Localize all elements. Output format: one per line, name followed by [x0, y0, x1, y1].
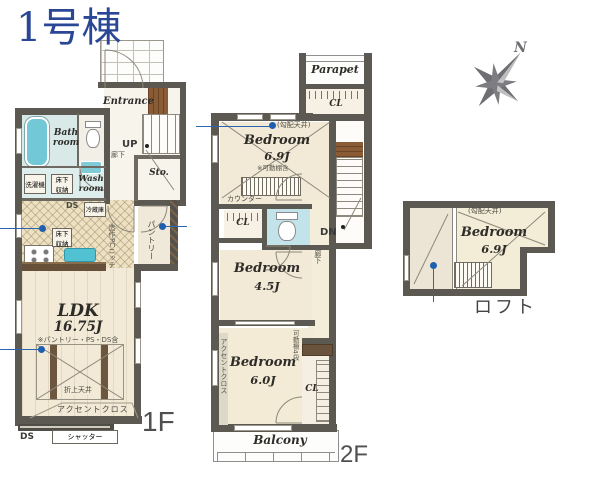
toilet-1f-tank [85, 121, 101, 128]
balcony-label: Balcony [248, 434, 312, 447]
wall [403, 289, 527, 296]
underfloor-storage-box: 床下 収納 [52, 228, 72, 247]
marker-dot-coffered[interactable] [38, 346, 45, 353]
ds-duct-line [20, 426, 110, 428]
accent-cloth-1f-label: アクセントクロス [57, 406, 129, 415]
marker-line [196, 126, 272, 127]
bookshelf [241, 177, 301, 196]
ceiling-beam-left [50, 345, 57, 399]
bedroom69-size: 6.9J [240, 150, 314, 163]
closet-bottom-label: CL [303, 384, 321, 394]
closet-top-label: CL [326, 99, 346, 109]
pantry-label: パントリー [146, 220, 155, 268]
window [16, 214, 22, 238]
bedroom45-name: Bedroom [230, 262, 304, 277]
marker-line [0, 349, 41, 350]
partition [134, 155, 138, 201]
wall [15, 108, 110, 115]
storage-room-floor [138, 159, 178, 201]
bedroom60-size: 6.0J [226, 374, 300, 387]
marker-line [433, 266, 434, 302]
floor2-label: 2F [340, 442, 368, 469]
bedroom69-note: ※可動棚含 [257, 165, 288, 172]
wall [262, 245, 336, 250]
window [212, 262, 218, 296]
wall [301, 84, 371, 89]
bedroom69-name: Bedroom [240, 134, 314, 149]
entrance-label: Entrance [103, 96, 149, 107]
ds-bottom-label: DS [20, 432, 34, 442]
stairs-1f [142, 114, 180, 154]
hanger-rod [309, 91, 361, 99]
loft-bedroom-size: 6.9J [460, 243, 528, 256]
wall [134, 200, 186, 206]
hallway-2f-label: 廊下 [313, 250, 321, 280]
window [235, 321, 295, 325]
dn-dot [341, 225, 345, 229]
coffered-ceiling-label: 折上天井 [62, 387, 94, 395]
wall [403, 201, 410, 296]
page-title: 1号棟 [16, 8, 121, 48]
closet-mid-label: CL [233, 218, 253, 228]
wall [299, 114, 371, 121]
marker-line [0, 228, 42, 229]
kitchen-counter [22, 262, 106, 271]
window [212, 350, 218, 386]
accent-cloth-2f-label: アクセントクロス [219, 338, 227, 422]
wall [548, 201, 555, 253]
sloped-ceiling-2f-label: (勾配天井) [277, 122, 310, 130]
wall [219, 204, 265, 209]
window [16, 128, 22, 154]
ceiling-beam-right [101, 345, 108, 399]
window [270, 114, 296, 120]
refrigerator-box: 冷蔵庫 [84, 202, 106, 217]
loft-side-floor [410, 208, 454, 289]
bedroom45-size: 4.5J [230, 280, 304, 293]
stair-landing-2f [336, 142, 363, 157]
counter-label: カウンター [227, 196, 262, 204]
washing-machine-box: 洗濯機 [24, 174, 46, 194]
marker-dot-bedroom69[interactable] [269, 122, 276, 129]
up-dot [145, 144, 149, 148]
wall [364, 53, 372, 248]
toilet-2f-tank [276, 212, 298, 220]
ds-top-label: DS [66, 202, 78, 211]
compass-rose: N [452, 34, 548, 128]
wall [219, 238, 267, 243]
window [135, 282, 141, 308]
wash-room-label: Wash room [74, 175, 108, 194]
ldk-size: 16.75J [25, 320, 131, 335]
window [16, 300, 22, 334]
partition [22, 198, 106, 201]
toilet-1f-bowl [86, 129, 100, 148]
storage-label: Sto. [142, 168, 176, 178]
wall [98, 82, 186, 88]
wall [180, 82, 186, 206]
kitchen-sink [64, 248, 96, 262]
parapet-label: Parapet [307, 64, 363, 76]
wall [134, 264, 178, 271]
title-number: 1号棟 [16, 8, 121, 48]
marker-dot-pantry[interactable] [159, 223, 166, 230]
floor1-label: 1F [142, 406, 175, 437]
window [135, 338, 141, 364]
dn-label: DN [320, 227, 337, 238]
marker-dot-kitchen[interactable] [39, 225, 46, 232]
wall [333, 243, 372, 249]
up-label: UP [122, 139, 137, 150]
compass-north-label: N [513, 40, 528, 56]
loft-label: ロフト [474, 297, 537, 317]
pc-niche-label: 造作PCニッチ [107, 224, 115, 290]
wall [262, 204, 267, 250]
underfloor-storage-box: 床下 収納 [51, 174, 73, 194]
floorplan-canvas: 1号棟 N N [0, 0, 600, 490]
loft-ladder [454, 262, 492, 288]
window [237, 114, 263, 120]
bedroom60-name: Bedroom [226, 356, 300, 371]
wall [22, 416, 142, 424]
movable-shelf-label: 可動棚4段 [291, 330, 298, 368]
ldk-note: ※パントリー・PS・DS含 [25, 337, 131, 345]
hallway-1f-label: 廊下 [111, 152, 125, 160]
partition [22, 166, 106, 168]
window [234, 425, 292, 431]
sloped-ceiling-loft-label: (勾配天井) [468, 208, 501, 216]
bathtub [25, 117, 49, 167]
wall [262, 204, 312, 209]
shelf-strip [302, 344, 333, 356]
wall-hatched [170, 200, 178, 270]
window [212, 135, 218, 163]
marker-dot-loft[interactable] [430, 262, 437, 269]
partition [134, 155, 180, 159]
shutter-box: シャッター [52, 430, 118, 444]
window [404, 255, 409, 281]
wall [15, 108, 22, 426]
stairs-2f [336, 157, 363, 217]
marker-line [163, 226, 187, 227]
loft-bedroom-name: Bedroom [460, 226, 528, 241]
toilet-2f-bowl [278, 221, 296, 241]
parapet-rail-line [306, 61, 368, 62]
bath-room-label: Bath room [48, 128, 84, 148]
balcony-rail-ticks [217, 452, 335, 461]
